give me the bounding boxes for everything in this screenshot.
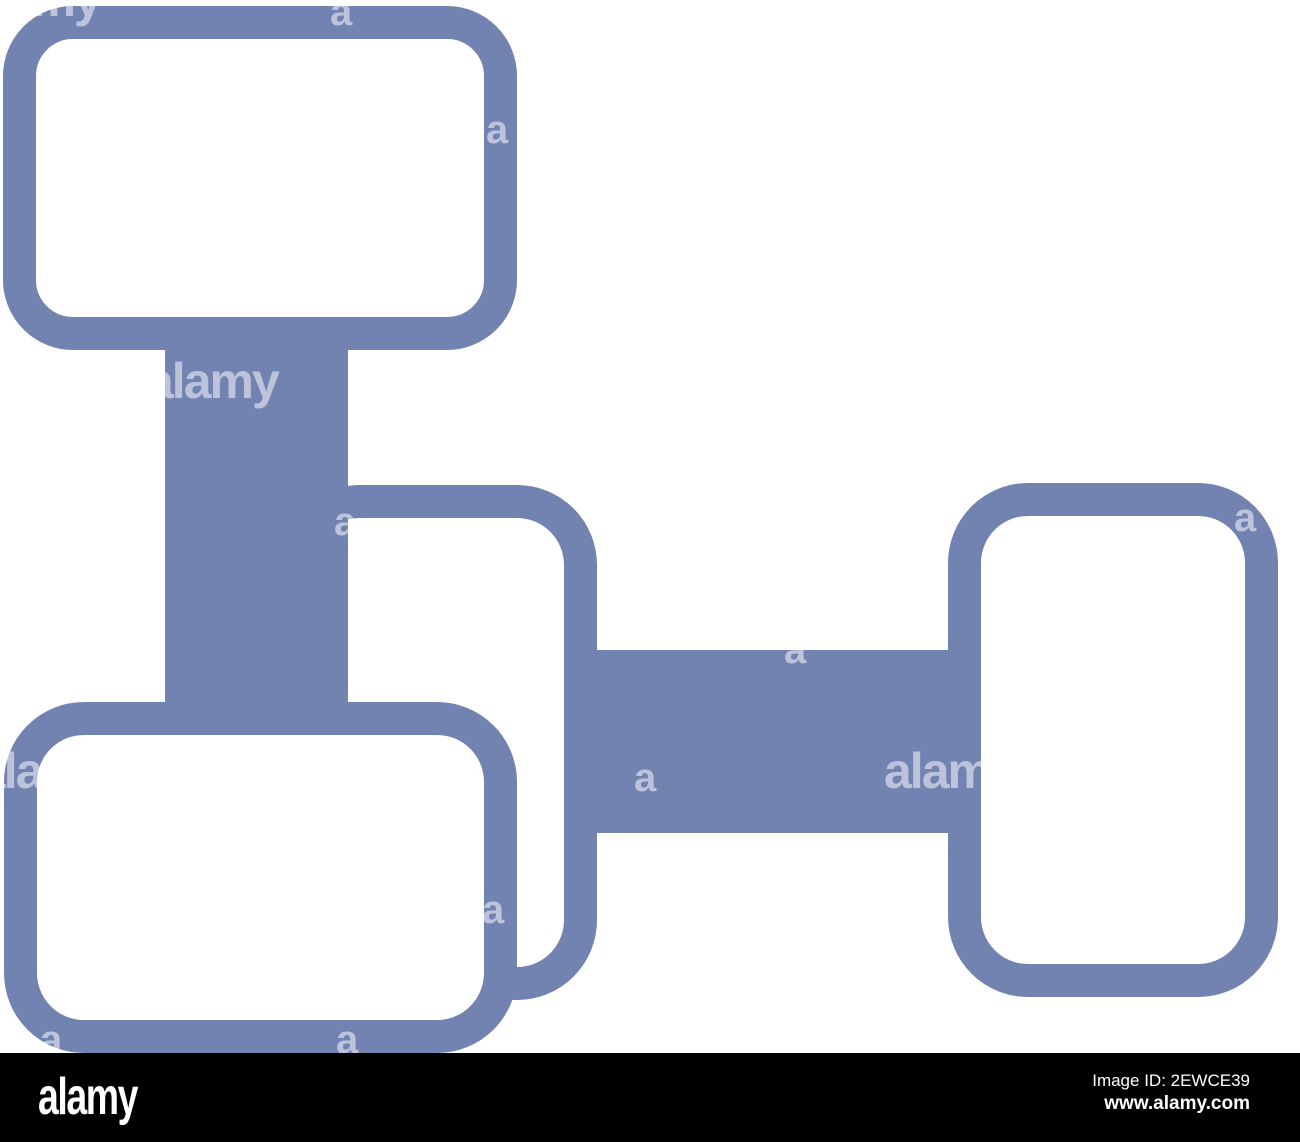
connector-bar-horizontal (560, 650, 1000, 833)
stock-image-canvas: alamy a a alamy a a a alamy a a alamy a … (0, 0, 1300, 1142)
watermark-text: alamy (0, 746, 110, 796)
footer-bar: alamy Image ID: 2EWCE39 www.alamy.com (0, 1053, 1300, 1142)
watermark-text: alamy (146, 356, 278, 406)
alamy-logo: alamy (38, 1071, 137, 1123)
top-left-rounded-rect (3, 6, 517, 350)
watermark-letter: a (784, 630, 804, 670)
image-id-text: Image ID: 2EWCE39 (1092, 1069, 1250, 1092)
watermark-text: alamy (884, 746, 1016, 796)
watermark-letter: a (486, 110, 506, 150)
right-rounded-rect (948, 483, 1278, 997)
website-url: www.alamy.com (1092, 1092, 1250, 1116)
watermark-letter: a (634, 758, 654, 798)
watermark-text: alamy (0, 0, 100, 24)
footer-info: Image ID: 2EWCE39 www.alamy.com (1092, 1069, 1250, 1116)
watermark-letter: a (482, 890, 502, 930)
watermark-letter: a (1234, 498, 1254, 538)
watermark-letter: a (334, 502, 354, 542)
watermark-letter: a (330, 0, 350, 32)
